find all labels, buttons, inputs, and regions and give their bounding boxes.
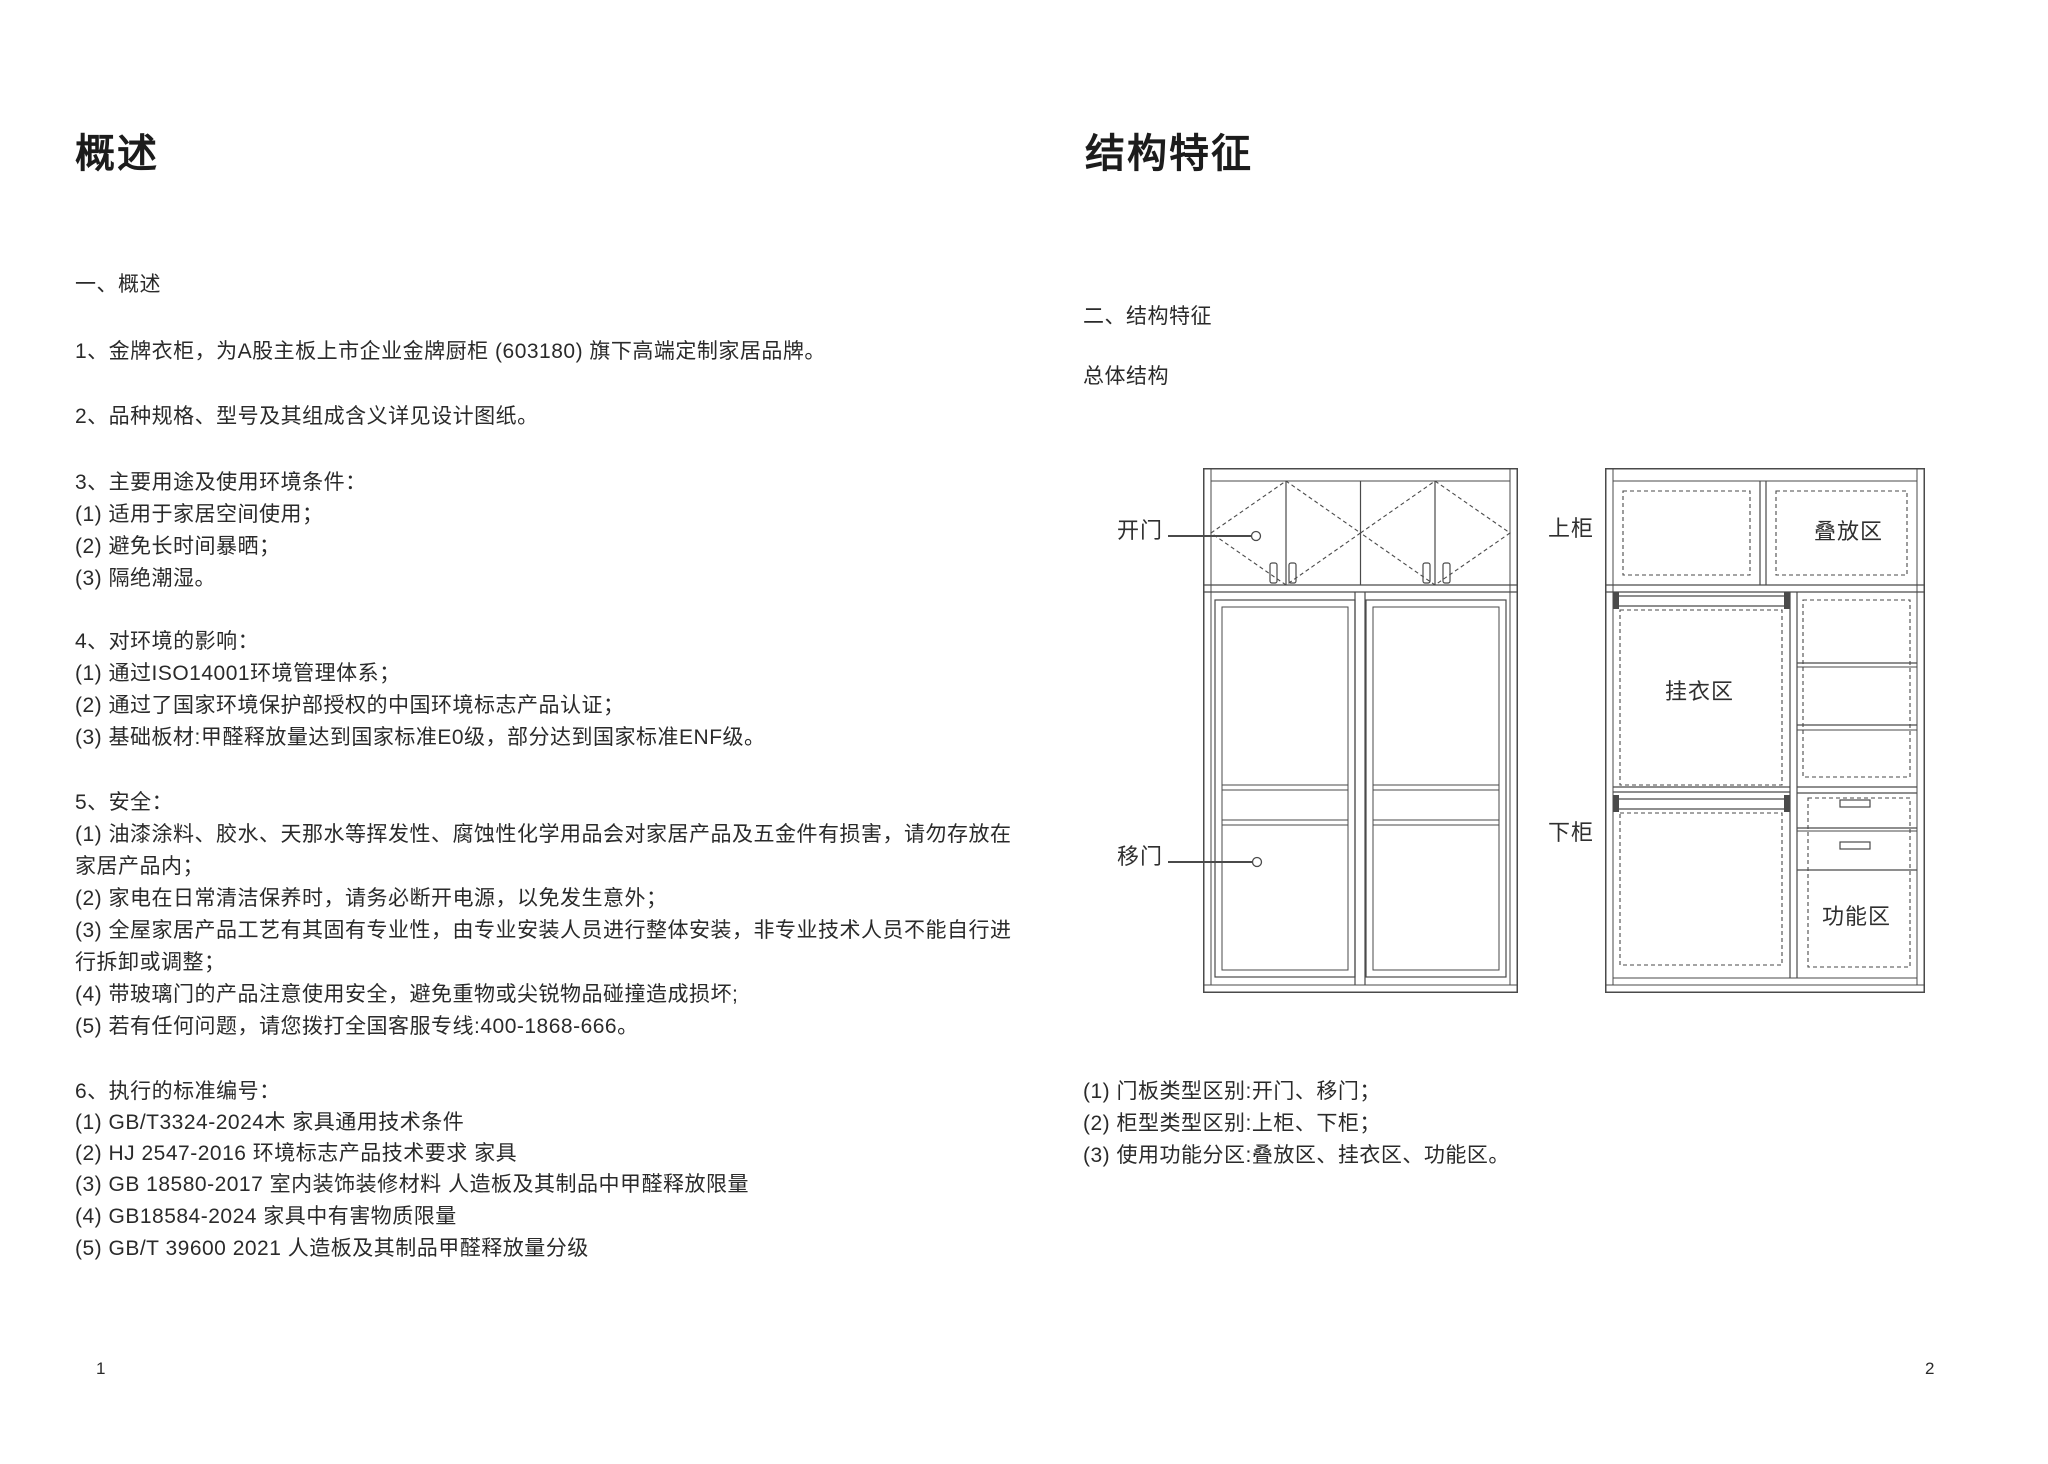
hanging-rod-top — [1613, 592, 1790, 609]
text-line: (1) 门板类型区别:开门、移门； — [1083, 1077, 1381, 1107]
text-line: 总体结构 — [1083, 362, 1169, 392]
sliding-door-right-panel — [1366, 600, 1506, 977]
label-stack-zone: 叠放区 — [1814, 521, 1883, 543]
text-line: 二、结构特征 — [1083, 302, 1212, 332]
function-zone-outline — [1808, 798, 1910, 967]
lower-cabinet-divider — [1790, 592, 1797, 978]
manual-spread: 概述 一、概述1、金牌衣柜，为A股主板上市企业金牌厨柜 (603180) 旗下高… — [0, 0, 2048, 1464]
drawers — [1797, 800, 1917, 870]
open-door-leader-line — [1168, 535, 1251, 537]
label-hang-zone: 挂衣区 — [1665, 681, 1734, 703]
label-upper-cabinet: 上柜 — [1548, 518, 1594, 540]
open-door-callout-point — [1252, 532, 1261, 541]
page-number-right: 2 — [1925, 1360, 1934, 1377]
sliding-center-stile — [1355, 592, 1365, 985]
upper-left-zone-outline — [1623, 491, 1750, 575]
text-line: (3) 使用功能分区:叠放区、挂衣区、功能区。 — [1083, 1141, 1510, 1171]
label-function-zone: 功能区 — [1822, 906, 1891, 928]
label-lower-cabinet: 下柜 — [1548, 822, 1594, 844]
shelf-zone-outline — [1803, 600, 1910, 777]
sliding-door-leader-line — [1168, 861, 1252, 863]
label-sliding-door: 移门 — [1117, 846, 1163, 868]
hanging-rod-bottom — [1613, 795, 1790, 812]
hang-zone-lower-outline — [1620, 813, 1782, 965]
sliding-door-left-panel — [1215, 600, 1355, 977]
drawer-handle — [1840, 800, 1870, 807]
sliding-door-callout-point — [1253, 858, 1262, 867]
text-line: (2) 柜型类型区别:上柜、下柜； — [1083, 1109, 1381, 1139]
drawer-handle — [1840, 842, 1870, 849]
wardrobe-front-diagram — [1203, 468, 1518, 993]
shelves — [1797, 663, 1917, 730]
upper-cabinet-divider — [1760, 481, 1766, 585]
label-open-door: 开门 — [1117, 520, 1163, 542]
